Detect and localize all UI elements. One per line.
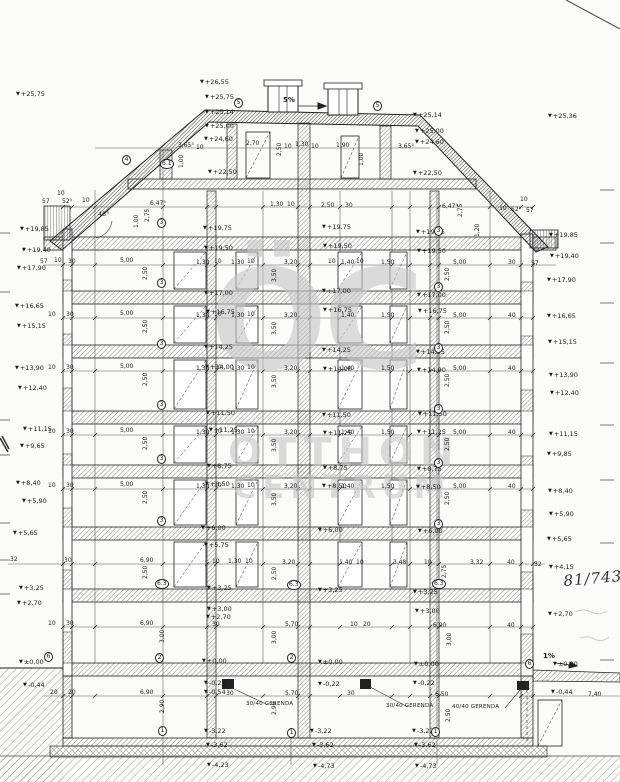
dimension-label: 10 bbox=[57, 191, 65, 197]
elevation-marker: +8,40 bbox=[548, 488, 573, 495]
elevation-marker: +14,00 bbox=[417, 367, 446, 374]
dimension-label: 10 bbox=[214, 483, 222, 489]
vertical-dimension-label: 3,50 bbox=[272, 439, 278, 452]
dimension-label: 40 bbox=[508, 366, 516, 372]
dimension-label: 1,30 bbox=[231, 313, 244, 319]
dimension-label: 5,00 bbox=[453, 430, 466, 436]
elevation-marker: +3,25 bbox=[318, 587, 343, 594]
elevation-marker: -0,22 bbox=[318, 681, 340, 688]
axis-bubble: 3 bbox=[434, 282, 443, 292]
elevation-marker: +19,85 bbox=[20, 226, 49, 233]
vertical-dimension-label: 3,50 bbox=[272, 375, 278, 388]
dimension-label: 1,30 bbox=[196, 430, 209, 436]
dimension-label: 3,20 bbox=[284, 313, 297, 319]
dimension-label: 5,70 bbox=[285, 622, 298, 628]
vertical-dimension-label: 2,50 bbox=[445, 268, 451, 281]
dimension-label: 6,90 bbox=[140, 558, 153, 564]
elevation-marker: ±0,00 bbox=[318, 659, 343, 666]
elevation-marker: +14,25 bbox=[204, 344, 233, 351]
dimension-label: 10 bbox=[356, 259, 364, 265]
vertical-dimension-label: 1,20 bbox=[475, 224, 481, 237]
elevation-marker: +25,00 bbox=[205, 123, 234, 130]
dimension-label: 6,90 bbox=[140, 690, 153, 696]
elevation-marker: +25,14 bbox=[413, 112, 442, 119]
axis-bubble: 3 bbox=[157, 516, 166, 526]
elevation-marker: -0,44 bbox=[551, 689, 573, 696]
axis-bubble: 6.3 bbox=[287, 580, 301, 590]
dimension-label: 10 bbox=[499, 206, 507, 212]
dimension-label: 10 bbox=[214, 312, 222, 318]
axis-bubble: 5 bbox=[373, 101, 382, 111]
vertical-dimension-label: 2,50 bbox=[143, 437, 149, 450]
dimension-label: 6,90 bbox=[433, 623, 446, 629]
elevation-marker: +4,15 bbox=[549, 564, 574, 571]
dimension-label: 6,47⁵ bbox=[442, 204, 458, 210]
dimension-label: 30 bbox=[66, 429, 74, 435]
vertical-dimension-label: 2,50 bbox=[445, 492, 451, 505]
dimension-label: 6,50 bbox=[435, 692, 448, 698]
dimension-label: 3,48 bbox=[393, 560, 406, 566]
elevation-marker: +19,75 bbox=[203, 225, 232, 232]
dimension-label: 6,47⁵ bbox=[150, 201, 166, 207]
dimension-label: 3,65⁵ bbox=[398, 144, 414, 150]
vertical-dimension-label: 2,50 bbox=[143, 373, 149, 386]
dimension-label: 40 bbox=[508, 313, 516, 319]
elevation-marker: ±0,00 bbox=[414, 661, 439, 668]
elevation-marker: +17,90 bbox=[17, 265, 46, 272]
vertical-dimension-label: 2,50 bbox=[143, 566, 149, 579]
elevation-marker: +24,60 bbox=[415, 139, 444, 146]
axis-bubble: 2 bbox=[287, 653, 296, 663]
dimension-label: 1,40 bbox=[341, 484, 354, 490]
dimension-label: 40 bbox=[508, 484, 516, 490]
elevation-marker: +3,25 bbox=[413, 589, 438, 596]
annotations-layer: +25,75+19,85+19,40+17,90+16,65+15,15+13,… bbox=[0, 0, 620, 782]
elevation-marker: -3,62 bbox=[312, 742, 334, 749]
dimension-label: 10 bbox=[520, 197, 528, 203]
dimension-label: 10 bbox=[350, 622, 358, 628]
dimension-label: 57 bbox=[531, 261, 539, 267]
dimension-label: 10 bbox=[196, 145, 204, 151]
dimension-label: 1,30 bbox=[231, 366, 244, 372]
elevation-marker: +3,00 bbox=[207, 606, 232, 613]
elevation-marker: +17,00 bbox=[322, 288, 351, 295]
elevation-marker: +22,50 bbox=[208, 169, 237, 176]
elevation-marker: +8,40 bbox=[16, 480, 41, 487]
dimension-label: 20 bbox=[68, 690, 76, 696]
dimension-label: 1,30 bbox=[295, 142, 308, 148]
elevation-marker: +2,70 bbox=[206, 614, 231, 621]
dimension-label: 1,50 bbox=[381, 366, 394, 372]
dimension-label: 57 bbox=[526, 208, 534, 214]
axis-bubble: 3 bbox=[157, 278, 166, 288]
dimension-label: 10 bbox=[214, 259, 222, 265]
dimension-label: 1,30 bbox=[231, 484, 244, 490]
vertical-dimension-label: 1,00 bbox=[359, 153, 365, 166]
dimension-label: 30 bbox=[66, 365, 74, 371]
elevation-marker: +3,25 bbox=[19, 585, 44, 592]
elevation-marker: +14,25 bbox=[322, 347, 351, 354]
elevation-marker: +13,90 bbox=[549, 372, 578, 379]
elevation-marker: +15,15 bbox=[548, 339, 577, 346]
dimension-label: 3,32 bbox=[470, 560, 483, 566]
dimension-label: 1,40 bbox=[341, 366, 354, 372]
vertical-dimension-label: 1,00 bbox=[179, 155, 185, 168]
architectural-section-drawing: ÖC OTTHON CENTRUM +25,75+19,85+19,40+17,… bbox=[0, 0, 620, 782]
axis-bubble: 6 bbox=[44, 652, 53, 662]
axis-bubble: 6.3 bbox=[432, 579, 446, 589]
dimension-label: 10 bbox=[48, 483, 56, 489]
dimension-label: 10 bbox=[48, 365, 56, 371]
elevation-marker: +11,50 bbox=[206, 410, 235, 417]
dimension-label: 32 bbox=[10, 557, 18, 563]
dimension-label: 3,20 bbox=[284, 260, 297, 266]
elevation-marker: +19,40 bbox=[550, 253, 579, 260]
elevation-marker: +17,00 bbox=[417, 292, 446, 299]
dimension-label: 1,30 bbox=[196, 366, 209, 372]
axis-bubble: 1 bbox=[158, 726, 167, 736]
walk-slope-label: 1% bbox=[543, 653, 555, 660]
elevation-marker: +22,50 bbox=[413, 170, 442, 177]
handwritten-note: 81/743/2 bbox=[563, 567, 620, 589]
elevation-marker: +19,50 bbox=[204, 245, 233, 252]
elevation-marker: +16,65 bbox=[547, 313, 576, 320]
dimension-label: 5,00 bbox=[120, 482, 133, 488]
elevation-marker: +2,70 bbox=[548, 611, 573, 618]
dimension-label: 5,70 bbox=[285, 691, 298, 697]
dimension-label: 1,30 bbox=[231, 430, 244, 436]
vertical-dimension-label: 3,00 bbox=[272, 631, 278, 644]
vertical-dimension-label: 2,50 bbox=[277, 143, 283, 156]
elevation-marker: +25,00 bbox=[415, 128, 444, 135]
elevation-marker: +16,65 bbox=[15, 303, 44, 310]
elevation-marker: +11,15 bbox=[549, 431, 578, 438]
elevation-marker: +11,50 bbox=[322, 412, 351, 419]
beam-note: 40/40 GERENDA bbox=[452, 705, 499, 711]
elevation-marker: +25,14 bbox=[205, 109, 234, 116]
dimension-label: 57 bbox=[40, 259, 48, 265]
dimension-label: 6,90 bbox=[140, 621, 153, 627]
vertical-dimension-label: 2,50 bbox=[446, 709, 452, 722]
elevation-marker: +5,75 bbox=[204, 542, 229, 549]
dimension-label: 3,20 bbox=[284, 484, 297, 490]
vertical-dimension-label: 2,50 bbox=[445, 438, 451, 451]
axis-bubble: 3 bbox=[157, 218, 166, 228]
elevation-marker: +9,65 bbox=[20, 443, 45, 450]
dimension-label: 3,65⁵ bbox=[178, 143, 194, 149]
elevation-marker: +12,40 bbox=[18, 385, 47, 392]
axis-bubble: 3 bbox=[157, 400, 166, 410]
dimension-label: 1,40 bbox=[341, 260, 354, 266]
dimension-label: 10 bbox=[356, 560, 364, 566]
dimension-label: 1,50 bbox=[381, 260, 394, 266]
roof-slope-label: 5% bbox=[283, 97, 295, 104]
dimension-label: 30 bbox=[508, 260, 516, 266]
axis-bubble: 3 bbox=[434, 519, 443, 529]
elevation-marker: -3,62 bbox=[414, 742, 436, 749]
elevation-marker: -4,73 bbox=[313, 763, 335, 770]
elevation-marker: +25,75 bbox=[205, 94, 234, 101]
elevation-marker: -4,23 bbox=[207, 762, 229, 769]
dimension-label: 10 bbox=[245, 559, 253, 565]
dimension-label: 52⁵ bbox=[511, 207, 521, 213]
vertical-dimension-label: 2,50 bbox=[445, 374, 451, 387]
dimension-label: 1,30 bbox=[270, 202, 283, 208]
elevation-marker: +19,50 bbox=[323, 243, 352, 250]
vertical-dimension-label: 2,50 bbox=[445, 321, 451, 334]
dimension-label: 57 bbox=[42, 199, 50, 205]
dimension-label: 32 bbox=[534, 562, 542, 568]
dimension-label: 10 bbox=[284, 144, 292, 150]
elevation-marker: -0,22 bbox=[204, 680, 226, 687]
axis-bubble: 3 bbox=[434, 343, 443, 353]
elevation-marker: +5,65 bbox=[547, 536, 572, 543]
dimension-label: 30 bbox=[345, 203, 353, 209]
elevation-marker: +19,40 bbox=[22, 247, 51, 254]
elevation-marker: +15,15 bbox=[17, 323, 46, 330]
elevation-marker: +25,36 bbox=[548, 113, 577, 120]
dimension-label: 30 bbox=[212, 622, 220, 628]
elevation-marker: +6,00 bbox=[418, 528, 443, 535]
dimension-label: 10 bbox=[212, 559, 220, 565]
dimension-label: 3,20 bbox=[282, 560, 295, 566]
elevation-marker: -0,22 bbox=[413, 680, 435, 687]
dimension-label: 10 bbox=[48, 621, 56, 627]
vertical-dimension-label: 2,90 bbox=[160, 700, 166, 713]
dimension-label: 1,90 bbox=[336, 143, 349, 149]
elevation-marker: +8,75 bbox=[323, 465, 348, 472]
elevation-marker: +24,60 bbox=[204, 136, 233, 143]
dimension-label: 10 bbox=[214, 429, 222, 435]
vertical-dimension-label: 3,00 bbox=[447, 633, 453, 646]
dimension-label: 1,30 bbox=[228, 559, 241, 565]
dimension-label: 5,00 bbox=[120, 428, 133, 434]
vertical-dimension-label: 2,75 bbox=[442, 565, 448, 578]
dimension-label: 5,00 bbox=[120, 258, 133, 264]
dimension-label: 10 bbox=[247, 259, 255, 265]
elevation-marker: -0,44 bbox=[23, 682, 45, 689]
dimension-label: 5,00 bbox=[453, 260, 466, 266]
dimension-label: 1,50 bbox=[381, 484, 394, 490]
dimension-label: 1,30 bbox=[196, 313, 209, 319]
dimension-label: 40 bbox=[507, 560, 515, 566]
dimension-label: 10 bbox=[247, 365, 255, 371]
dimension-label: 1,30 bbox=[231, 260, 244, 266]
vertical-dimension-label: 2,75 bbox=[458, 204, 464, 217]
axis-bubble: 6 bbox=[525, 659, 534, 669]
dimension-label: 10 bbox=[214, 365, 222, 371]
vertical-dimension-label: 2,50 bbox=[272, 567, 278, 580]
elevation-marker: +19,50 bbox=[417, 248, 446, 255]
elevation-marker: +3,00 bbox=[415, 608, 440, 615]
vertical-dimension-label: 2,50 bbox=[143, 491, 149, 504]
dimension-label: 30 bbox=[64, 558, 72, 564]
elevation-marker: +5,65 bbox=[13, 530, 38, 537]
dimension-label: 2,70 bbox=[246, 141, 259, 147]
elevation-marker: +6,00 bbox=[318, 527, 343, 534]
vertical-dimension-label: 3,00 bbox=[160, 630, 166, 643]
vertical-dimension-label: 3,50 bbox=[272, 322, 278, 335]
dimension-label: 5,00 bbox=[453, 484, 466, 490]
dimension-label: 30 bbox=[68, 259, 76, 265]
dimension-label: 10 bbox=[247, 312, 255, 318]
dimension-label: 10 bbox=[48, 429, 56, 435]
elevation-marker: ±0,00 bbox=[553, 661, 578, 668]
vertical-dimension-label: 2,50 bbox=[143, 267, 149, 280]
dimension-label: 10 bbox=[247, 483, 255, 489]
dimension-label: 40 bbox=[507, 623, 515, 629]
axis-bubble: 5 bbox=[234, 98, 243, 108]
dimension-label: 1,30 bbox=[196, 484, 209, 490]
dimension-label: 1,50 bbox=[381, 430, 394, 436]
elevation-marker: +26,55 bbox=[200, 79, 229, 86]
axis-bubble: 3 bbox=[157, 454, 166, 464]
elevation-marker: +19,85 bbox=[549, 232, 578, 239]
elevation-marker: +19,75 bbox=[322, 224, 351, 231]
elevation-marker: +17,00 bbox=[204, 290, 233, 297]
roof-angle-label: 45° bbox=[98, 211, 110, 218]
elevation-marker: +11,25 bbox=[417, 429, 446, 436]
elevation-marker: -4,73 bbox=[415, 763, 437, 770]
elevation-marker: -0,54 bbox=[204, 689, 226, 696]
axis-bubble: 2 bbox=[155, 653, 164, 663]
dimension-label: 10 bbox=[328, 259, 336, 265]
dimension-label: 20 bbox=[50, 690, 58, 696]
axis-bubble: 1 bbox=[287, 728, 296, 738]
vertical-dimension-label: 3,50 bbox=[272, 493, 278, 506]
dimension-label: 2,50 bbox=[321, 203, 334, 209]
dimension-label: 7,40 bbox=[588, 692, 601, 698]
dimension-label: 3,20 bbox=[284, 366, 297, 372]
dimension-label: 5,00 bbox=[453, 366, 466, 372]
axis-bubble: 4 bbox=[122, 155, 131, 165]
elevation-marker: +12,40 bbox=[550, 390, 579, 397]
elevation-marker: +8,75 bbox=[207, 463, 232, 470]
dimension-label: 5,00 bbox=[453, 313, 466, 319]
dimension-label: 52⁵ bbox=[62, 199, 72, 205]
dimension-label: 1,50 bbox=[381, 313, 394, 319]
elevation-marker: +17,90 bbox=[547, 277, 576, 284]
beam-note: 30/40 GERENDA bbox=[386, 704, 433, 710]
dimension-label: 20 bbox=[363, 622, 371, 628]
axis-bubble: 6.3 bbox=[155, 579, 169, 589]
elevation-marker: +25,75 bbox=[16, 91, 45, 98]
dimension-label: 1,30 bbox=[196, 260, 209, 266]
dimension-label: 40 bbox=[508, 430, 516, 436]
vertical-dimension-label: 1,00 bbox=[134, 215, 140, 228]
beam-note: 30/40 GERENDA bbox=[246, 702, 293, 708]
dimension-label: 10 bbox=[287, 202, 295, 208]
dimension-label: 10 bbox=[424, 560, 432, 566]
dimension-label: 10 bbox=[311, 144, 319, 150]
dimension-label: 10 bbox=[247, 429, 255, 435]
vertical-dimension-label: 2,50 bbox=[143, 320, 149, 333]
dimension-label: 5,00 bbox=[120, 311, 133, 317]
axis-bubble: 3 bbox=[157, 339, 166, 349]
dimension-label: 30 bbox=[66, 621, 74, 627]
dimension-label: 30 bbox=[226, 691, 234, 697]
dimension-label: 1,40 bbox=[341, 430, 354, 436]
elevation-marker: +9,85 bbox=[547, 451, 572, 458]
dimension-label: 10 bbox=[82, 198, 90, 204]
dimension-label: 30 bbox=[66, 483, 74, 489]
dimension-label: 10 bbox=[48, 312, 56, 318]
elevation-marker: +5,90 bbox=[22, 498, 47, 505]
elevation-marker: -3,22 bbox=[204, 728, 226, 735]
elevation-marker: ±0,00 bbox=[19, 659, 44, 666]
elevation-marker: -3,22 bbox=[310, 728, 332, 735]
elevation-marker: +13,90 bbox=[15, 365, 44, 372]
dimension-label: 30 bbox=[66, 312, 74, 318]
vertical-dimension-label: 2,75 bbox=[145, 209, 151, 222]
elevation-marker: +8,50 bbox=[416, 484, 441, 491]
axis-bubble: 3 bbox=[434, 226, 443, 236]
dimension-label: 1,40 bbox=[341, 313, 354, 319]
axis-bubble: 3 bbox=[434, 458, 443, 468]
dimension-label: 10 bbox=[54, 258, 62, 264]
axis-bubble: 1 bbox=[431, 727, 440, 737]
elevation-marker: +2,70 bbox=[17, 600, 42, 607]
elevation-marker: +3,25 bbox=[207, 585, 232, 592]
dimension-label: 5,00 bbox=[120, 364, 133, 370]
elevation-marker: +5,90 bbox=[549, 511, 574, 518]
elevation-marker: +11,50 bbox=[418, 411, 447, 418]
axis-bubble: 3 bbox=[434, 404, 443, 414]
elevation-marker: +6,00 bbox=[201, 525, 226, 532]
elevation-marker: -3,62 bbox=[206, 742, 228, 749]
elevation-marker: +16,75 bbox=[418, 308, 447, 315]
axis-bubble: 6.1 bbox=[160, 159, 174, 169]
dimension-label: 30 bbox=[347, 691, 355, 697]
vertical-dimension-label: 3,50 bbox=[272, 269, 278, 282]
elevation-marker: ±0,00 bbox=[202, 658, 227, 665]
dimension-label: 3,20 bbox=[284, 430, 297, 436]
dimension-label: 1,40 bbox=[339, 560, 352, 566]
